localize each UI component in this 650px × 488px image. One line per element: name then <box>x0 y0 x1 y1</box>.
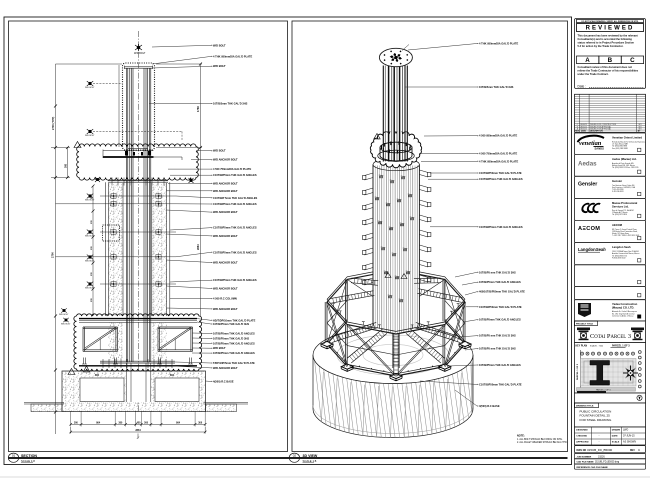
svg-text:REVIEWED: REVIEWED <box>586 26 635 32</box>
svg-text:LWO: LWO <box>623 429 628 432</box>
svg-text:2864: 2864 <box>196 244 200 250</box>
svg-text:4 500 750mmDIA GAL'D PLATE: 4 500 750mmDIA GAL'D PLATE <box>213 167 252 171</box>
svg-text:Services Ltd.: Services Ltd. <box>612 204 629 208</box>
svg-text:JOB NUMBER: JOB NUMBER <box>577 456 592 458</box>
svg-text:W/D BOLT: W/D BOLT <box>85 135 95 137</box>
svg-text:DWG NO: DWG NO <box>577 450 587 452</box>
svg-text:W/D ANCHOR BOLT: W/D ANCHOR BOLT <box>213 366 238 370</box>
svg-text:W/D ANCHOR BOLT: W/D ANCHOR BOLT <box>213 286 238 290</box>
svg-text:F 415.836.4599: F 415.836.4599 <box>612 191 624 193</box>
svg-text:W/D BOLT: W/D BOLT <box>61 323 71 325</box>
svg-text:DATE: DATE <box>581 130 587 133</box>
svg-text:T/DP/10P/5mm THK GAL'D PLATE: T/DP/10P/5mm THK GAL'D PLATE <box>213 361 255 365</box>
svg-text:10T/B/P5mm THK GAL'D ANGLES: 10T/B/P5mm THK GAL'D ANGLES <box>479 318 521 322</box>
svg-text:W/D ANCHOR BOLT: W/D ANCHOR BOLT <box>213 158 238 162</box>
svg-text:C10T/B/P50mm THK GAL'D PLATE: C10T/B/P50mm THK GAL'D PLATE <box>479 305 522 309</box>
svg-text:4 THK 950mmDIA GAL'D PLATE: 4 THK 950mmDIA GAL'D PLATE <box>479 42 519 46</box>
svg-text:AΞCOM: AΞCOM <box>578 226 600 232</box>
svg-text:under the Trade Contract.: under the Trade Contract. <box>578 72 609 76</box>
svg-text:(Macau) CO. LTD.: (Macau) CO. LTD. <box>612 306 634 310</box>
svg-text:COTAI PARCEL 3: COTAI PARCEL 3 <box>590 333 631 340</box>
svg-text:3D VIEW: 3D VIEW <box>303 454 318 458</box>
svg-text:Langdon Seah: Langdon Seah <box>612 245 631 249</box>
svg-text:C10T/B/P5mm THK GAL'D ANGLES: C10T/B/P5mm THK GAL'D ANGLES <box>479 177 523 181</box>
svg-text:400/10T/B/P50mm THK GAL'D PLAT: 400/10T/B/P50mm THK GAL'D PLATE <box>479 290 525 294</box>
svg-text:W/D BOLT: W/D BOLT <box>213 346 226 350</box>
svg-text:W/D BOLT: W/D BOLT <box>213 149 226 153</box>
svg-text:4(500) R.C BASE: 4(500) R.C BASE <box>479 404 500 408</box>
svg-text:B: B <box>608 57 613 64</box>
svg-text:CAD FILE NAME: CAD FILE NAME <box>577 461 595 464</box>
svg-text:LangdonSeah: LangdonSeah <box>578 247 606 252</box>
svg-text:C10T/B/P 5mm THK GAL'D ANGLES: C10T/B/P 5mm THK GAL'D ANGLES <box>213 196 258 200</box>
svg-text:4 500 R.C COLUMN: 4 500 R.C COLUMN <box>213 297 237 301</box>
svg-text:W/D BOLT: W/D BOLT <box>213 43 226 47</box>
svg-text:10T/B/P5mm THK GAL'D 3HS: 10T/B/P5mm THK GAL'D 3HS <box>213 322 249 326</box>
svg-text:4 500 950mmDIA GAL'D PLATE: 4 500 950mmDIA GAL'D PLATE <box>479 134 518 138</box>
svg-text:10T/B/P5mm THK GAL'D ANGLES: 10T/B/P5mm THK GAL'D ANGLES <box>213 331 255 335</box>
svg-text:W/D BOLT: W/D BOLT <box>59 314 69 316</box>
svg-text:HD/T/DP/10mm THK GAL'D PLATE: HD/T/DP/10mm THK GAL'D PLATE <box>213 318 256 322</box>
svg-text:C10T/B/P50mm THK GAL'D PLATE: C10T/B/P50mm THK GAL'D PLATE <box>479 382 522 386</box>
svg-text:W/D ANCHOR BOLT: W/D ANCHOR BOLT <box>213 307 238 311</box>
svg-text:10T/B/P5mm THK GAL'D ANGLES: 10T/B/P5mm THK GAL'D ANGLES <box>479 363 521 367</box>
svg-text:4(500) R.C BASE: 4(500) R.C BASE <box>213 379 234 383</box>
svg-text:F (853) 2833 1532: F (853) 2833 1532 <box>612 257 626 259</box>
svg-text:1766: 1766 <box>196 106 200 112</box>
svg-text:Gensler: Gensler <box>578 181 597 187</box>
svg-text:KEY PLAN: KEY PLAN <box>576 344 588 347</box>
svg-text:APPROVED: APPROVED <box>576 441 589 444</box>
svg-text:315UB_FD_B5000: 315UB_FD_B5000 <box>587 448 613 452</box>
svg-text:W/D BOLT: W/D BOLT <box>134 52 146 55</box>
svg-text:DESCRIPTION: DESCRIPTION <box>590 131 603 133</box>
svg-text:10T/B/5mm THK GAL'D 3HS: 10T/B/5mm THK GAL'D 3HS <box>479 85 514 89</box>
svg-text:SCALE 1:8: SCALE 1:8 <box>21 459 35 463</box>
svg-text:1. ALL BOLT SHOULD BE FIXING O: 1. ALL BOLT SHOULD BE FIXING ON SITE. <box>517 438 563 441</box>
svg-text:4 500 750mmDIA GAL'D PLATE: 4 500 750mmDIA GAL'D PLATE <box>479 152 518 156</box>
svg-text:C10T/B/P5mm THK GAL'D ANGLES: C10T/B/P5mm THK GAL'D ANGLES <box>479 225 523 229</box>
svg-text:C10T/B/P50mm THK GAL'D PLATE: C10T/B/P50mm THK GAL'D PLATE <box>479 171 522 175</box>
svg-text:W/D ANCHOR BOLT: W/D ANCHOR BOLT <box>213 234 238 238</box>
svg-text:SCALE: SCALE <box>612 441 620 444</box>
svg-text:10T/B/P5mm THK GAL'D 3HS: 10T/B/P5mm THK GAL'D 3HS <box>213 336 249 340</box>
svg-text:2864: 2864 <box>135 429 141 432</box>
svg-text:10T/B/P5 mm THK GAL'D 3HS: 10T/B/P5 mm THK GAL'D 3HS <box>479 334 516 338</box>
svg-text:W/D ANCHOR BOLT: W/D ANCHOR BOLT <box>213 189 238 193</box>
svg-text:864: 864 <box>95 374 100 377</box>
svg-text:2700 (TYP): 2700 (TYP) <box>51 117 55 130</box>
svg-text:4 THK 950mmDIA GAL'D PLATE: 4 THK 950mmDIA GAL'D PLATE <box>479 159 519 163</box>
svg-text:C10T/B/P5mm THK GAL'D ANGLES: C10T/B/P5mm THK GAL'D ANGLES <box>213 202 257 206</box>
svg-text:10T/B/P5 mm THK GAL'D 3HS: 10T/B/P5 mm THK GAL'D 3HS <box>479 270 516 274</box>
svg-text:PARCEL 1 OF 3: PARCEL 1 OF 3 <box>576 363 579 380</box>
svg-text:C10T/B/P5mm THK GAL'D ANGLES: C10T/B/P5mm THK GAL'D ANGLES <box>213 250 257 254</box>
svg-text:Consultants(s) and is accorded: Consultants(s) and is accorded the follo… <box>578 37 633 41</box>
svg-text:venetian: venetian <box>579 140 602 147</box>
svg-text:T 415.433.3700: T 415.433.3700 <box>612 189 624 191</box>
svg-text:PROJECT TITLE: PROJECT TITLE <box>576 324 594 326</box>
svg-text:C: C <box>630 57 635 64</box>
svg-text:status referred to in Projec: status referred to in Project Procedure … <box>578 41 635 45</box>
svg-text:2700: 2700 <box>51 252 55 258</box>
svg-text:Aedas (Macau) Ltd.: Aedas (Macau) Ltd. <box>612 157 637 161</box>
svg-text:10T/B/P5mm THK GAL'D ANGLES: 10T/B/P5mm THK GAL'D ANGLES <box>213 341 255 345</box>
svg-text:DATE: DATE <box>612 435 618 438</box>
svg-text:AS SHOWN: AS SHOWN <box>623 441 636 444</box>
svg-text:SANDS: SANDS <box>595 147 605 151</box>
svg-text:DRAWING TITLE:: DRAWING TITLE: <box>576 405 594 408</box>
svg-text:10T/B/P5mm THK GAL'D ANGLES: 10T/B/P5mm THK GAL'D ANGLES <box>213 351 255 355</box>
svg-text:DESIGNED: DESIGNED <box>576 430 588 432</box>
svg-text:A: A <box>585 57 590 64</box>
svg-text:REFERENCE CAD FILE NAME: REFERENCE CAD FILE NAME <box>577 466 609 469</box>
svg-text:W/D BOLT: W/D BOLT <box>213 64 226 68</box>
svg-text:C10T/B/P5mm THK GAL'D ANGLES: C10T/B/P5mm THK GAL'D ANGLES <box>213 173 257 177</box>
svg-text:10T/B/P5mm THK GAL'D ANGLES: 10T/B/P5mm THK GAL'D ANGLES <box>479 280 521 284</box>
svg-text:C10T/B/P5mm THK GAL'D ANGLES: C10T/B/P5mm THK GAL'D ANGLES <box>213 226 257 230</box>
svg-text:SCALE 1 : 7500: SCALE 1 : 7500 <box>590 344 603 347</box>
svg-text:NOTE:: NOTE: <box>517 435 525 438</box>
svg-text:Tel: (853) 2833 1113 Fax: 283: Tel: (853) 2833 1113 Fax: 2833 1115 <box>612 167 639 169</box>
svg-text:4 THK 950mmDIA GAL'D PLATE: 4 THK 950mmDIA GAL'D PLATE <box>213 54 253 58</box>
svg-text:FOR STEEL DRAWING: FOR STEEL DRAWING <box>580 418 612 422</box>
svg-text:07-JUN-15: 07-JUN-15 <box>623 435 635 438</box>
svg-text:Venetian Orient Limited: Venetian Orient Limited <box>612 136 642 140</box>
svg-text:W/D ANCHOR BOLT: W/D ANCHOR BOLT <box>213 210 238 214</box>
svg-text:Consultant review of this docu: Consultant review of this document does … <box>578 65 633 69</box>
svg-text:SECTION: SECTION <box>21 454 37 458</box>
svg-text:SCALE 1:8: SCALE 1:8 <box>303 459 317 463</box>
svg-text:PARCEL 2 OF 3: PARCEL 2 OF 3 <box>596 388 611 391</box>
svg-text:Fax: (853) 2882 8889: Fax: (853) 2882 8889 <box>612 148 628 150</box>
svg-text:relieve the Trade Contractor: relieve the Trade Contractor of his resp… <box>578 68 639 72</box>
svg-text:864: 864 <box>170 374 175 377</box>
svg-text:W/D BOLT: W/D BOLT <box>85 87 95 89</box>
svg-text:AECOM: AECOM <box>612 223 623 227</box>
svg-text:02: 02 <box>293 454 297 458</box>
svg-text:W/D ANCHOR BOLT: W/D ANCHOR BOLT <box>213 261 238 265</box>
svg-text:315UB_FD_B5000.dwg: 315UB_FD_B5000.dwg <box>595 462 620 464</box>
svg-text:Tel: (853) 2882 8888: Tel: (853) 2882 8888 <box>612 146 627 148</box>
svg-text:W/D ANCHOR BOLT: W/D ANCHOR BOLT <box>213 181 238 185</box>
svg-text:DRAWN: DRAWN <box>612 429 621 432</box>
svg-text:10T/B/5mm THK GAL'D 3HS: 10T/B/5mm THK GAL'D 3HS <box>213 102 248 106</box>
svg-text:This document has been reviewe: This document has been reviewed by the r… <box>578 33 638 37</box>
svg-text:REV: REV <box>630 450 635 452</box>
svg-text:300: 300 <box>64 163 67 168</box>
svg-text:DO NOT SCALE DRAWING. VERIFY A: DO NOT SCALE DRAWING. VERIFY ALL DIMENSI… <box>581 20 638 23</box>
svg-text:10T/B/P5 mm THK GAL'D 3HS: 10T/B/P5 mm THK GAL'D 3HS <box>479 347 516 351</box>
svg-text:Gensler: Gensler <box>612 179 622 183</box>
svg-text:Aedas: Aedas <box>578 160 597 167</box>
svg-text:5.4 for action by the Trade Co: 5.4 for action by the Trade Contractor. <box>578 44 624 48</box>
svg-text:Tel: (853) 2833 1710: Tel: (853) 2833 1710 <box>612 255 627 257</box>
svg-text:31526: 31526 <box>598 455 605 458</box>
svg-text:2. ALL FILLET WELDED SHOULD BE: 2. ALL FILLET WELDED SHOULD BE 6mm THK. <box>517 441 568 444</box>
svg-text:CHECKED: CHECKED <box>576 436 587 438</box>
svg-text:Date :: Date : <box>578 84 587 88</box>
svg-text:Tel: (853) 2871 8816: Tel: (853) 2871 8816 <box>612 214 627 216</box>
svg-text:C10T/B/P5mm THK GAL'D ANGLES: C10T/B/P5mm THK GAL'D ANGLES <box>213 278 257 282</box>
svg-text:T +852 2317 7600 F +852 2691: T +852 2317 7600 F +852 2691 2649 <box>612 235 639 237</box>
svg-text:01: 01 <box>12 454 16 458</box>
